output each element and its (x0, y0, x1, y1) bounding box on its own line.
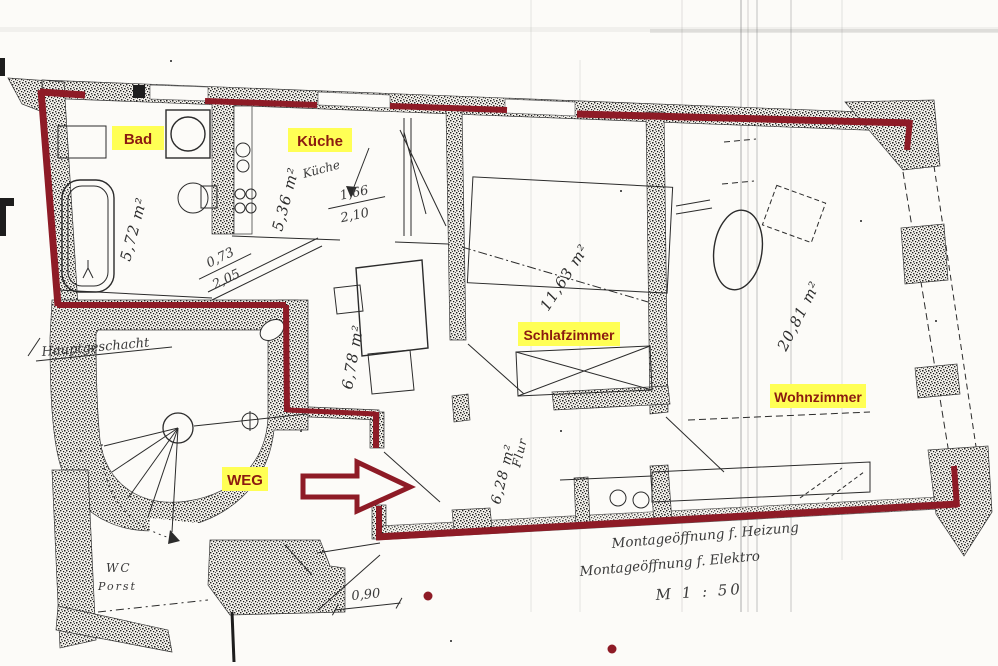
door-bad-height: 2,05 (209, 267, 242, 294)
bad-label: Bad (124, 131, 152, 148)
door-dimension-kueche: 1,66 2,10 (325, 180, 389, 228)
red-dot-2 (608, 645, 617, 654)
flur-area: 6,28 m² (488, 442, 518, 506)
door-dimension-bad: 0,73 2,05 (192, 238, 260, 297)
wc-line1: WC (106, 561, 132, 575)
wall-corner-bottomright (928, 446, 992, 556)
door-kueche-height: 2,10 (338, 205, 370, 226)
room-label-weg: WEG (222, 467, 268, 491)
schlafzimmer-area: 11,63 m² (536, 241, 592, 315)
wall-schlaf-wohn (646, 112, 668, 414)
weg-label: WEG (227, 472, 263, 489)
room-center-area: 6,78 m² (338, 323, 367, 391)
schlafzimmer-label: Schlafzimmer (523, 327, 615, 343)
door-bad-width: 0,73 (204, 245, 237, 271)
room-label-schlafzimmer: Schlafzimmer (518, 322, 620, 346)
wc-line2: Porst (97, 580, 137, 593)
kueche-area: 5,36 m² (268, 165, 302, 233)
walls (8, 78, 992, 662)
floor-plan-drawing: Bad Küche Schlafzimmer Wohnzimmer WEG 5,… (0, 0, 998, 666)
scale-note: M 1 : 50 (654, 580, 743, 604)
red-dots (424, 592, 617, 654)
room-label-wohnzimmer: Wohnzimmer (770, 384, 866, 408)
red-dot-1 (424, 592, 433, 601)
wc-annotation: WC Porst (97, 561, 137, 593)
door-bottom-width: 0,90 (351, 586, 381, 604)
kueche-scribble: Küche (300, 158, 341, 182)
red-arrow-icon (303, 462, 410, 511)
wall-corner-topright (845, 100, 940, 170)
kueche-label: Küche (297, 133, 343, 150)
bottom-notes: Montageöffnung f. Heizung Montageöffnung… (578, 520, 800, 604)
note-line2: Montageöffnung f. Elektro (578, 548, 761, 580)
paper-specks (80, 60, 937, 642)
wohnzimmer-label: Wohnzimmer (774, 389, 862, 405)
stair-annotation: Hauptgeschacht (28, 336, 172, 361)
room-label-bad: Bad (112, 126, 164, 150)
floor-plan-page: Bad Küche Schlafzimmer Wohnzimmer WEG 5,… (0, 0, 998, 666)
wohnzimmer-area: 20,81 m² (773, 278, 824, 355)
bad-area: 5,72 m² (116, 195, 150, 263)
wall-shaft (212, 100, 234, 234)
room-label-kueche: Küche (288, 128, 352, 152)
wall-hall-schlafzimmer (446, 108, 466, 340)
